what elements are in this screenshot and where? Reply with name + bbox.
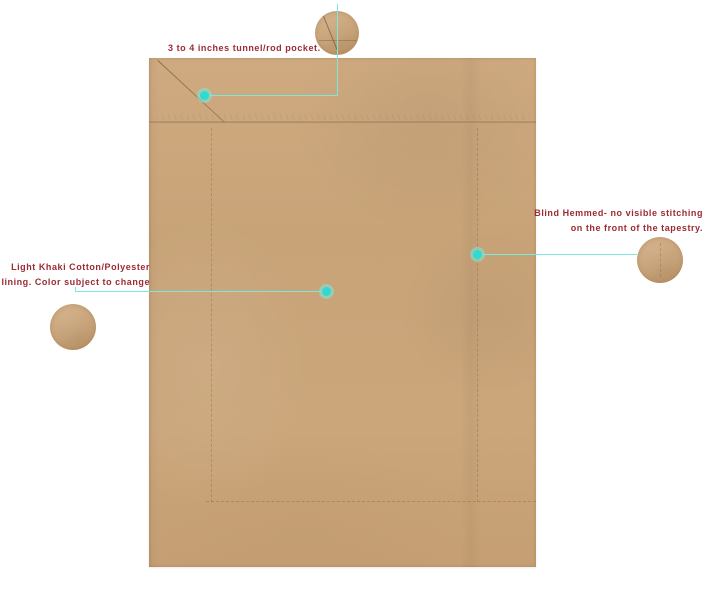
- note-lining: Light Khaki Cotton/Polyester lining. Col…: [1, 260, 150, 290]
- lining-detail-swatch: [50, 304, 96, 350]
- note-rod-pocket: 3 to 4 inches tunnel/rod pocket.: [168, 41, 321, 56]
- callout-line-rod-pocket-horizontal: [204, 95, 338, 96]
- rod-pocket-detail-fold-line: [323, 16, 337, 50]
- rod-pocket-zigzag-stitching: [157, 114, 529, 120]
- rod-pocket-detail-seam-line: [319, 40, 357, 41]
- blind-hem-detail-swatch: [637, 237, 683, 283]
- hem-stitch-left: [211, 128, 212, 502]
- callout-line-rod-pocket-vertical: [337, 4, 338, 95]
- callout-line-blind-hem: [477, 254, 637, 255]
- tapestry-annotation-diagram: 3 to 4 inches tunnel/rod pocket. Blind H…: [0, 0, 706, 600]
- callout-dot-rod-pocket: [200, 91, 209, 100]
- rod-pocket-seam: [149, 121, 536, 124]
- note-blind-hem-line2: on the front of the tapestry.: [534, 221, 703, 236]
- blind-hem-detail-stitch-line: [660, 243, 661, 277]
- hem-stitch-bottom: [206, 501, 536, 502]
- callout-line-lining-horizontal: [75, 291, 326, 292]
- hem-stitch-right: [477, 128, 478, 502]
- callout-dot-lining: [322, 287, 331, 296]
- callout-dot-blind-hem: [473, 250, 482, 259]
- note-lining-line1: Light Khaki Cotton/Polyester: [1, 260, 150, 275]
- note-blind-hem-line1: Blind Hemmed- no visible stitching: [534, 206, 703, 221]
- note-blind-hem: Blind Hemmed- no visible stitching on th…: [534, 206, 703, 236]
- tapestry-back-panel: [149, 58, 536, 567]
- note-rod-pocket-text: 3 to 4 inches tunnel/rod pocket.: [168, 41, 321, 56]
- note-lining-line2: lining. Color subject to change: [1, 275, 150, 290]
